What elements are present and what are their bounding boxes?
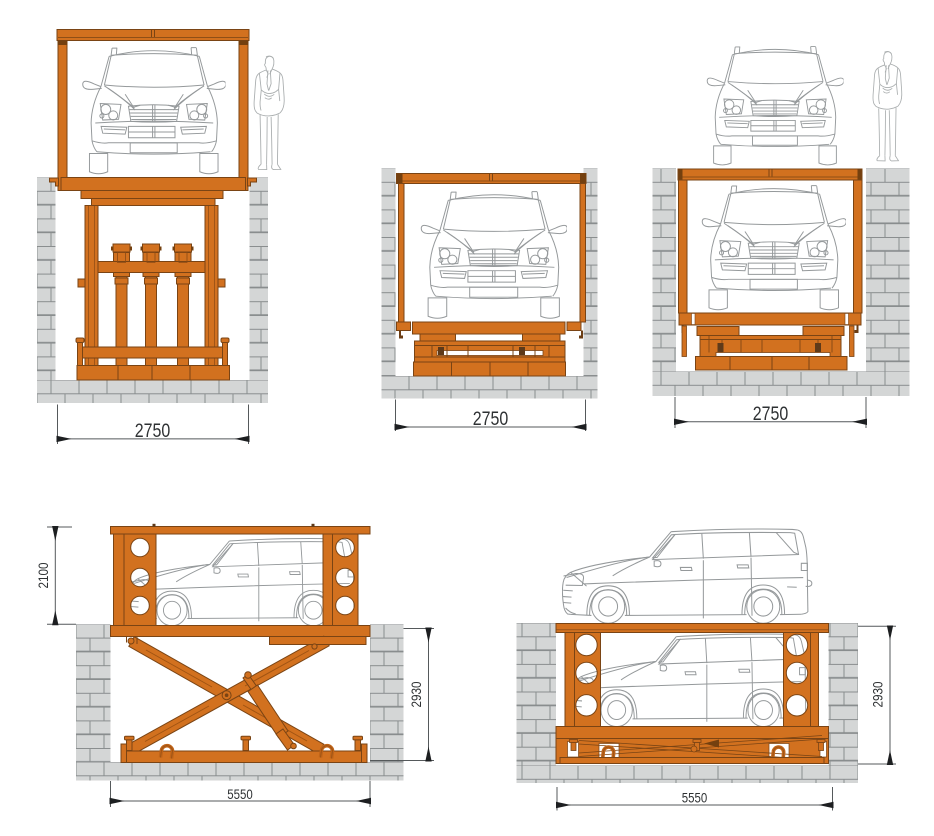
svg-text:2750: 2750 <box>135 421 171 442</box>
svg-text:2930: 2930 <box>408 681 424 707</box>
svg-text:2100: 2100 <box>35 562 51 588</box>
svg-text:5550: 5550 <box>682 791 708 806</box>
svg-text:2750: 2750 <box>473 409 509 430</box>
svg-text:2930: 2930 <box>870 681 886 707</box>
svg-text:2750: 2750 <box>753 404 789 425</box>
svg-text:5550: 5550 <box>227 787 253 802</box>
